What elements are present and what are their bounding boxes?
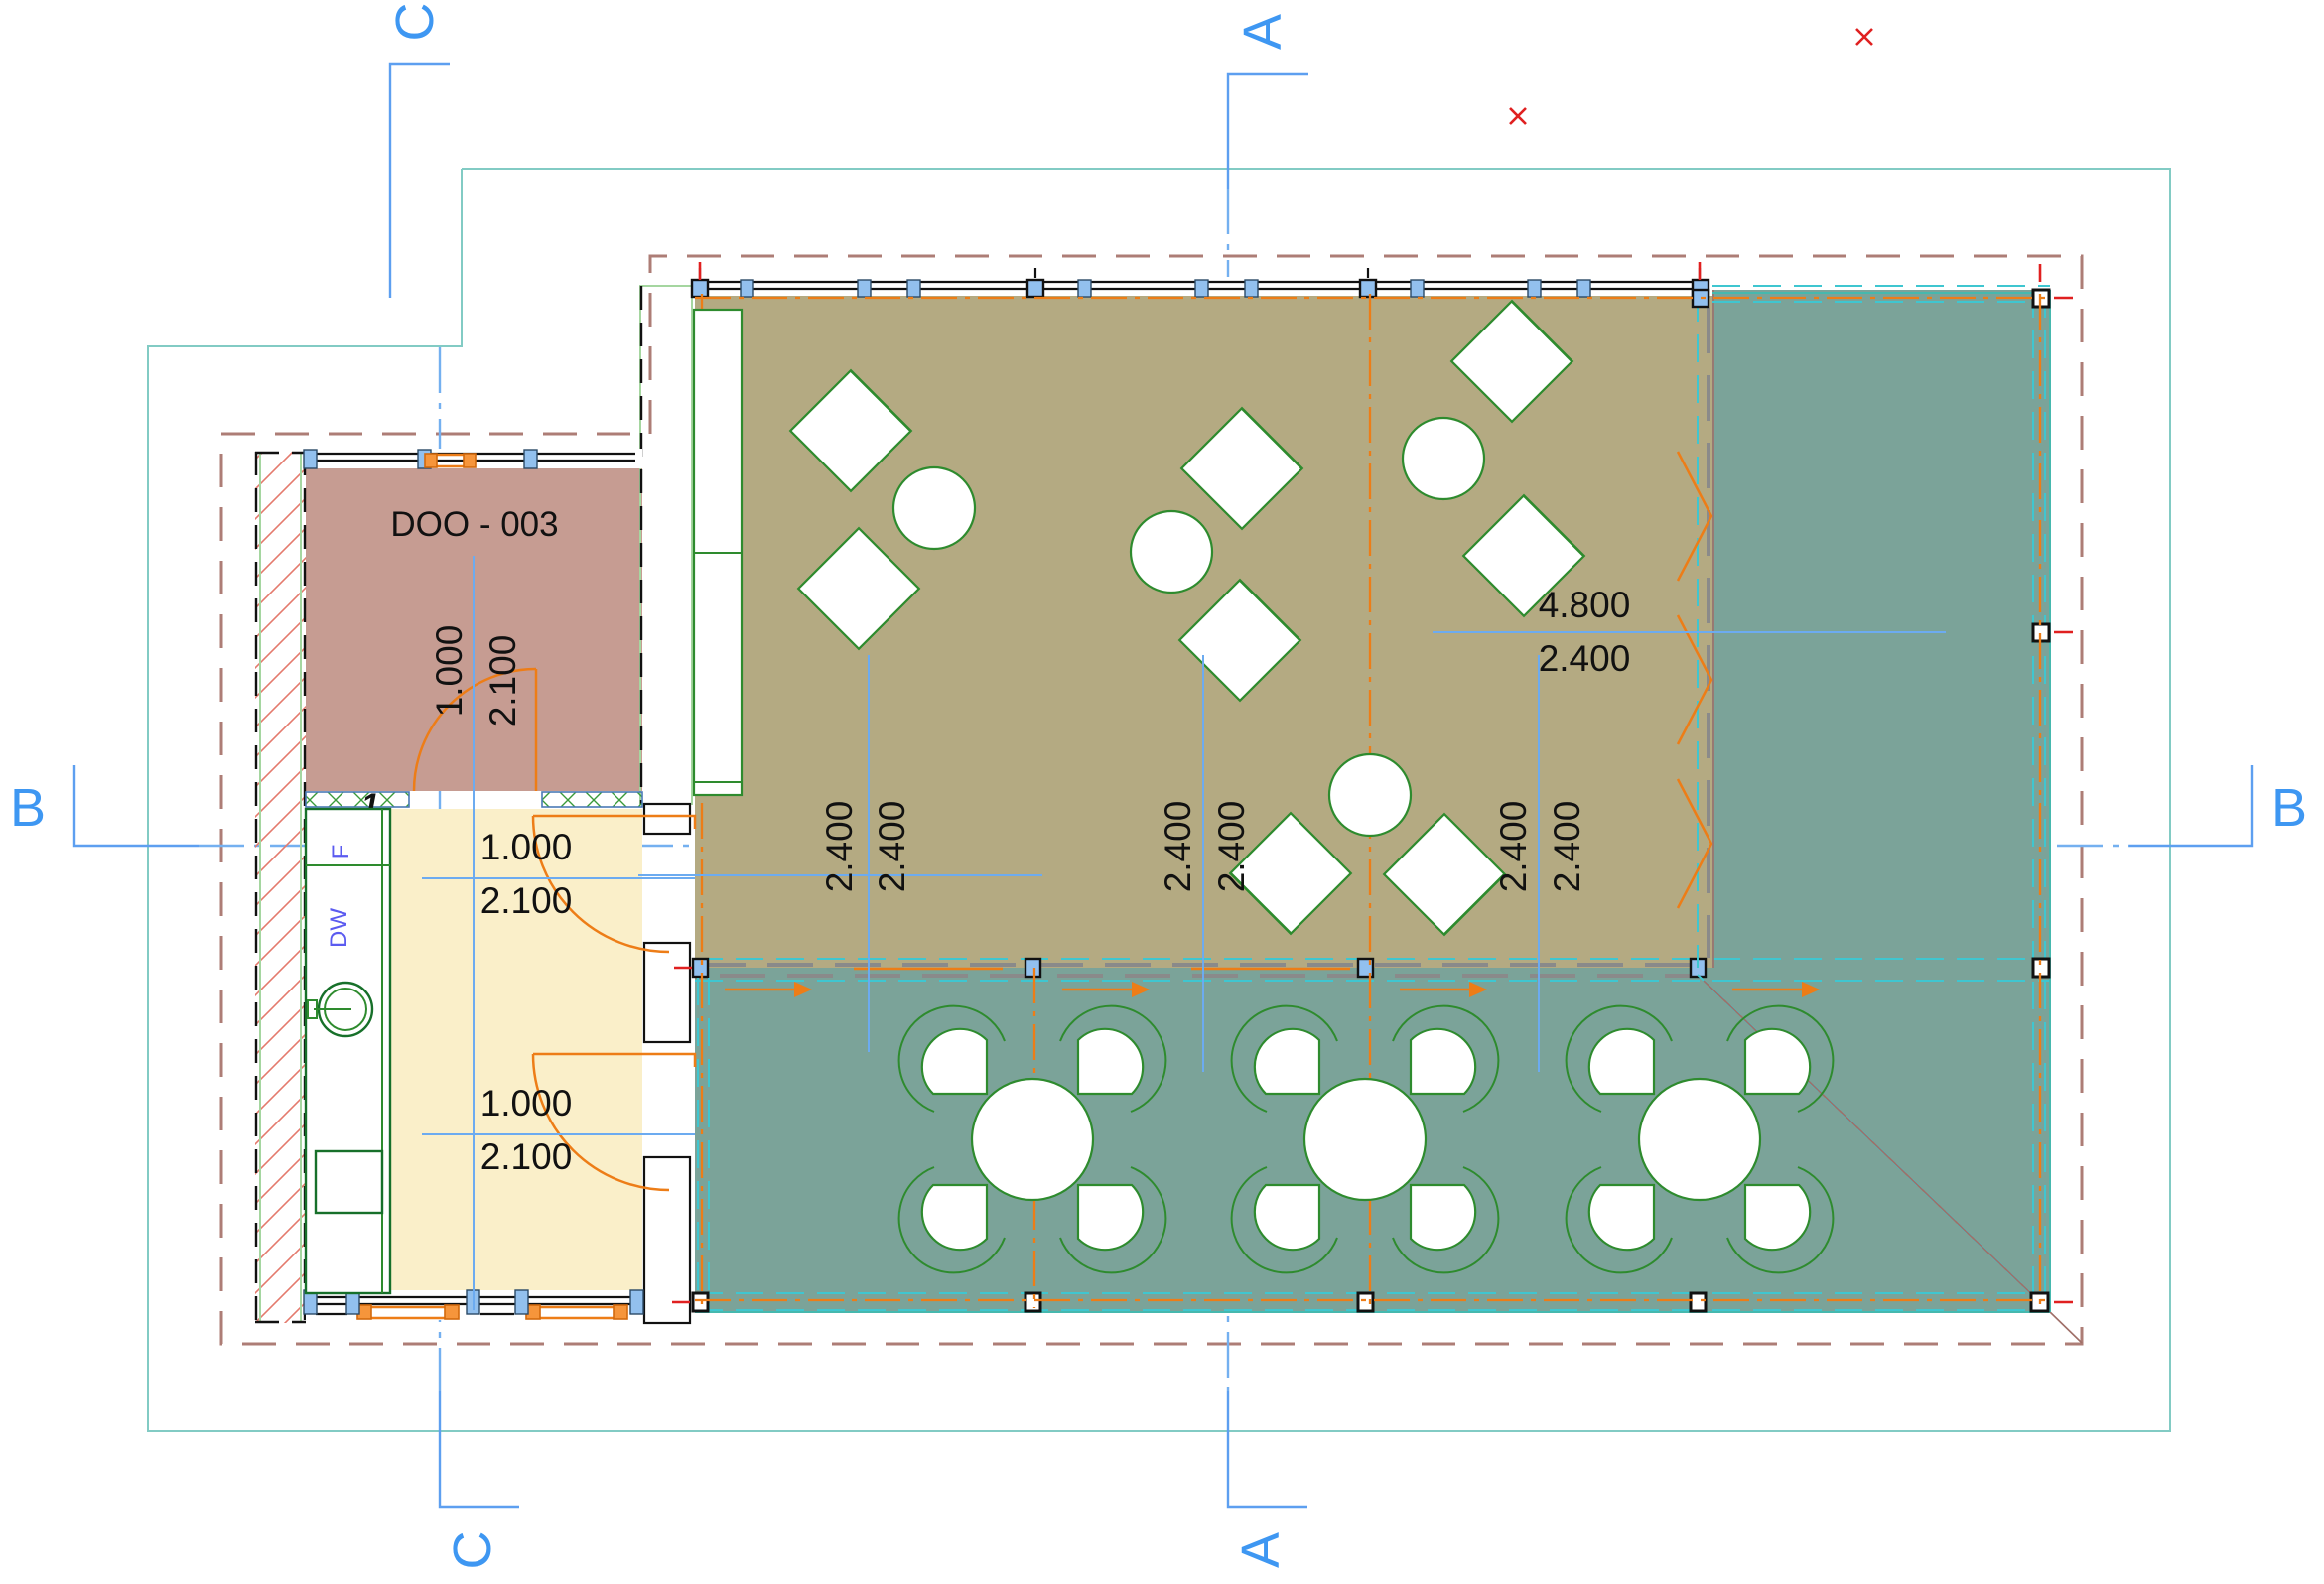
- table-round: [1131, 511, 1212, 593]
- window-mullion: [858, 280, 871, 297]
- dim-door3-width: 1.000: [480, 1083, 573, 1123]
- label-fridge: F: [328, 845, 354, 859]
- survey-cross-marker: [1510, 108, 1526, 124]
- dim-door1-width: 1.000: [429, 625, 470, 718]
- structural-post: [693, 959, 708, 977]
- structural-post: [693, 1293, 708, 1311]
- floor-plan-drawing: C C A A B B: [0, 0, 2324, 1584]
- section-marker-b-right: B: [2271, 778, 2307, 838]
- room-label-doo-003: DOO - 003: [390, 505, 558, 544]
- dim-bay: 2.400: [1493, 801, 1534, 893]
- window-mullion: [1411, 280, 1424, 297]
- dim-bay: 2.400: [872, 801, 912, 893]
- dim-bay: 2.400: [1547, 801, 1587, 893]
- window-mullion: [1078, 280, 1091, 297]
- dim-bay: 2.400: [819, 801, 860, 893]
- structural-post: [1027, 280, 1043, 297]
- label-dishwasher: DW: [326, 908, 352, 948]
- section-marker-c-bottom: C: [443, 1531, 502, 1570]
- section-marker-a-top: A: [1233, 14, 1293, 50]
- structural-post: [1360, 280, 1376, 297]
- dim-door3-height: 2.100: [480, 1136, 573, 1177]
- dim-door1-height: 2.100: [482, 635, 523, 727]
- window-mullion: [1528, 280, 1541, 297]
- wall-doo-room-top: [304, 449, 642, 468]
- dim-2400-depth: 2.400: [1539, 638, 1631, 679]
- dim-bay: 2.400: [1158, 801, 1198, 893]
- dim-door2-width: 1.000: [480, 827, 573, 867]
- table-round: [1403, 418, 1484, 499]
- section-marker-b-left: B: [10, 778, 46, 838]
- window-mullion: [630, 1290, 643, 1314]
- section-marker-a-bottom: A: [1231, 1532, 1291, 1568]
- window-mullion: [304, 450, 317, 468]
- window-mullion: [907, 280, 920, 297]
- survey-cross-marker: [1856, 29, 1872, 45]
- window-mullion: [1577, 280, 1590, 297]
- table-round: [893, 467, 975, 549]
- wall-left-hatched: [255, 452, 306, 1323]
- structural-post: [1025, 1293, 1040, 1311]
- wall-dining-left-hatched: [640, 286, 692, 804]
- kitchen-counter: [306, 809, 390, 1293]
- wall-kitchen-right-piers: [644, 804, 690, 1323]
- awning-corner-line: [2048, 1310, 2082, 1343]
- dim-door2-height: 2.100: [480, 880, 573, 921]
- table-round: [1329, 754, 1411, 836]
- window-mullion: [741, 280, 753, 297]
- floor-plan-canvas: C C A A B B: [0, 0, 2324, 1584]
- window-mullion: [1195, 280, 1208, 297]
- kitchen-oven: [316, 1151, 382, 1213]
- structural-post: [1025, 959, 1040, 977]
- dim-bay: 2.400: [1211, 801, 1252, 893]
- window-mullion: [524, 450, 537, 468]
- window-mullion: [515, 1290, 528, 1314]
- wall-dining-top-glazing: [692, 268, 1712, 297]
- structural-post: [1691, 1293, 1706, 1311]
- window-mullion: [1245, 280, 1258, 297]
- section-marker-c-top: C: [385, 3, 445, 42]
- buffet-counter: [694, 310, 742, 795]
- dim-4800: 4.800: [1539, 585, 1631, 625]
- structural-post: [692, 280, 708, 297]
